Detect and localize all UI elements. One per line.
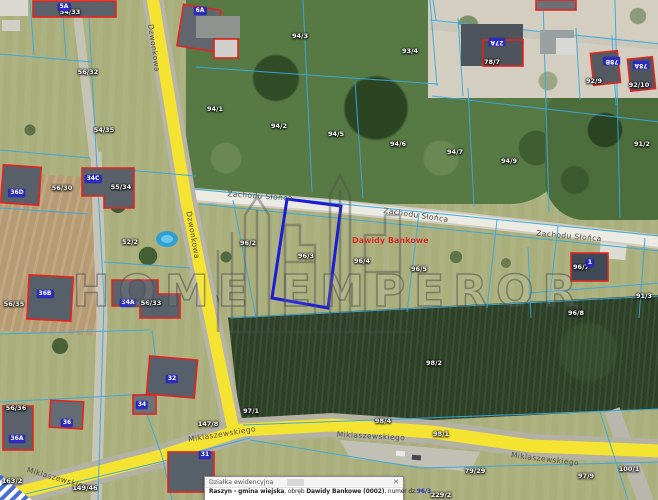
parcel-number-label: 96/5 — [411, 265, 427, 273]
parcel-number-label: 163/2 — [2, 477, 22, 485]
street-label: Dzwonkowa — [146, 24, 162, 73]
building-number-tag: 36A — [9, 435, 25, 443]
panel-title: Działka ewidencyjna — [209, 479, 273, 486]
panel-text-part: Raszyn - gmina wiejska — [209, 489, 284, 495]
parcel-number-label: 96/4 — [354, 257, 370, 265]
building-number-tag: 36D — [9, 189, 25, 197]
parcel-number-label: 96/2 — [240, 239, 256, 247]
parcel-number-label: 92/10 — [629, 81, 649, 89]
parcel-info-panel: Działka ewidencyjna ✕ Raszyn - gmina wie… — [204, 476, 404, 500]
parcel-number-label: 91/2 — [634, 140, 650, 148]
parcel-number-label: 94/2 — [271, 122, 287, 130]
parcel-number-label: 56/32 — [78, 68, 98, 76]
building-number-tag: 34 — [136, 401, 147, 409]
building-number-tag: 32 — [166, 375, 177, 383]
panel-text-part: 96/3 — [417, 489, 431, 495]
parcel-number-label: 93/4 — [402, 47, 418, 55]
building-number-tag: 36B — [37, 290, 53, 298]
parcel-number-label: 98/2 — [426, 359, 442, 367]
close-icon[interactable]: ✕ — [393, 478, 399, 486]
parcel-number-label: 94/3 — [292, 32, 308, 40]
panel-text-part: , numer dz: — [384, 489, 417, 495]
street-label: Miklaszewskiego — [510, 450, 579, 467]
street-label: Miklaszewskiego — [337, 430, 406, 443]
parcel-number-label: 56/33 — [141, 299, 161, 307]
parcel-description: Raszyn - gmina wiejska, obręb Dawidy Ban… — [205, 488, 403, 495]
street-label: Dzwonkowa — [184, 210, 201, 259]
building-number-tag: 5A — [58, 3, 70, 11]
building-number-tag: 36 — [61, 419, 72, 427]
parcel-number-label: 79/29 — [465, 467, 485, 475]
panel-badge — [287, 479, 304, 486]
parcel-number-label: 98/4 — [375, 417, 391, 425]
parcel-number-label: 147/8 — [198, 420, 218, 428]
parcel-number-label: 55/34 — [111, 183, 131, 191]
building-number-tag: 78A — [633, 61, 649, 69]
parcel-number-label: 96/8 — [568, 309, 584, 317]
building-number-tag: 78B — [604, 57, 620, 65]
parcel-number-label: 149/46 — [73, 484, 98, 492]
parcel-number-label: 94/5 — [328, 130, 344, 138]
place-label: Dawidy Bankowe — [352, 236, 429, 245]
parcel-number-label: 52/2 — [122, 238, 138, 246]
parcel-number-label: 97/9 — [578, 472, 594, 480]
street-label: Zachodu Słońca — [536, 229, 602, 244]
parcel-number-label: 56/35 — [4, 300, 24, 308]
map-labels: Dawidy Bankowe DzwonkowaDzwonkowaZachodu… — [0, 0, 658, 500]
map-viewport[interactable]: Dawidy Bankowe DzwonkowaDzwonkowaZachodu… — [0, 0, 658, 500]
street-label: Zachodu Słońca — [227, 189, 293, 203]
parcel-number-label: 56/30 — [52, 184, 72, 192]
street-label: Zachodu Słońca — [383, 206, 449, 224]
parcel-number-label: 96/3 — [298, 252, 314, 260]
parcel-number-label: 98/1 — [433, 430, 449, 438]
parcel-number-label: 94/1 — [207, 105, 223, 113]
building-number-tag: 34C — [85, 175, 101, 183]
parcel-number-label: 92/9 — [586, 77, 602, 85]
parcel-number-label: 56/36 — [6, 404, 26, 412]
panel-text-part: Dawidy Bankowe (0002) — [306, 489, 384, 495]
parcel-number-label: 100/1 — [619, 465, 639, 473]
parcel-number-label: 94/6 — [390, 140, 406, 148]
building-number-tag: 1 — [586, 259, 593, 267]
building-number-tag: 27A — [489, 38, 505, 46]
building-number-tag: 6A — [194, 7, 206, 15]
parcel-number-label: 54/35 — [94, 126, 114, 134]
building-number-tag: 31 — [199, 451, 210, 459]
parcel-number-label: 78/7 — [484, 58, 500, 66]
parcel-number-label: 97/1 — [243, 407, 259, 415]
parcel-number-label: 94/7 — [447, 148, 463, 156]
panel-title-row: Działka ewidencyjna ✕ — [205, 477, 403, 488]
parcel-number-label: 91/3 — [636, 292, 652, 300]
parcel-number-label: 229/2 — [431, 491, 451, 499]
building-number-tag: 34A — [120, 299, 136, 307]
parcel-number-label: 94/9 — [501, 157, 517, 165]
panel-text-part: , obręb — [284, 489, 306, 495]
